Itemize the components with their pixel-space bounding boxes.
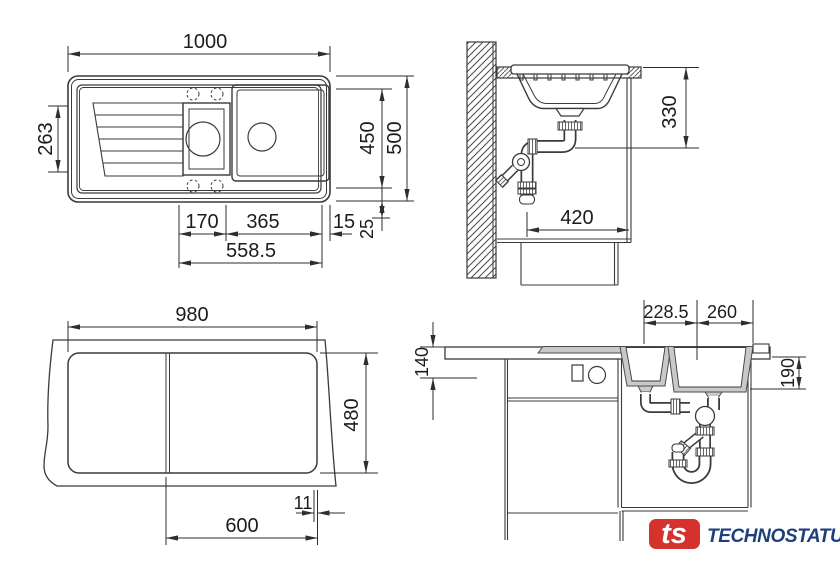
dim-label-small-bowl-width: 170 [185,211,218,233]
dim-label-cutout-width: 980 [175,304,208,326]
dim-label-cutout-depth: 480 [341,398,363,431]
technical-drawing: 1000 263 450 500 25 [0,0,840,583]
wall [467,42,496,278]
pipe-nut [696,448,714,456]
view-cutout-plan: 980 480 11 600 [44,304,378,545]
cutout-outline [68,353,317,473]
socket-outlet-round [589,367,606,384]
pipe-nut [671,399,680,414]
pipe-nut [696,427,714,435]
siphon-assembly [646,392,715,477]
small-bowl-drain-stub [638,386,653,392]
dim-left-bowl-depth: 263 [35,106,68,172]
logo-brand-text: TECHNOSTATUS [707,526,840,547]
dim-label-base-cabinet-width: 600 [225,515,258,537]
dim-bottom-row: 170 365 15 558.5 [179,205,355,268]
main-bowl-drain [248,123,276,151]
dim-label-main-bowl-offset: 260 [707,302,737,322]
trap-ring [518,189,536,194]
brand-logo: ts TECHNOSTATUS [649,518,840,550]
dim-label-side-rim: 15 [333,211,355,233]
dim-label-bowl-depth: 190 [778,358,798,388]
drainboard-profile [538,347,622,354]
dim-label-overall-width: 1000 [183,31,228,53]
sink-cross-section [538,344,769,398]
main-bowl [232,85,329,181]
dim-label-worktop-drop: 140 [412,347,432,377]
worktop-outline [44,340,336,486]
dim-label-bowl-area-depth: 450 [357,121,379,154]
socket-outlet-square [572,365,583,381]
dim-label-front-rim: 25 [357,219,377,239]
dim-label-left-bowl-depth: 263 [35,122,57,155]
dim-cutout-width: 980 [68,304,317,352]
dim-label-corner-offset: 11 [294,493,313,513]
dim-corner-offset: 11 [294,490,345,545]
countertop-end-block [753,344,769,353]
dim-label-bowls-span: 558.5 [226,240,276,262]
dim-label-overall-depth: 500 [384,121,406,154]
dim-clear-depth: 420 [527,207,629,237]
trap-inlet-cap [672,444,684,452]
dim-outlet-height: 330 [575,68,699,149]
sink-section [511,65,629,116]
dim-label-small-bowl-offset: 228.5 [643,302,688,322]
drain-plumbing [496,118,582,204]
trap-cap [520,195,535,204]
view-front-section: 228.5 260 140 190 [412,300,806,541]
ball-joint [696,407,715,426]
pipe-nut [558,122,582,130]
sink-technical-drawing-sheet: 1000 263 450 500 25 [0,0,840,583]
dim-label-clear-depth: 420 [560,207,593,229]
logo-monogram: ts [661,518,687,550]
view-top-plan: 1000 263 450 500 25 [35,31,414,268]
pipe-nut [669,460,687,467]
dim-bowl-depth: 190 [750,357,806,389]
dim-label-outlet-height: 330 [659,95,681,128]
pipe-nut [528,139,537,154]
view-wall-section: 330 420 [467,42,699,285]
small-bowl-drain [186,122,220,156]
dim-worktop-drop: 140 [412,322,477,420]
trap-ring [518,182,536,188]
dim-label-main-bowl-width: 365 [246,211,279,233]
dim-cutout-depth: 480 [320,353,378,473]
drainboard [93,103,183,176]
small-bowl [183,103,230,175]
dim-overall-width: 1000 [68,31,330,72]
trap-flange [513,154,530,171]
drain-flange [556,109,584,117]
